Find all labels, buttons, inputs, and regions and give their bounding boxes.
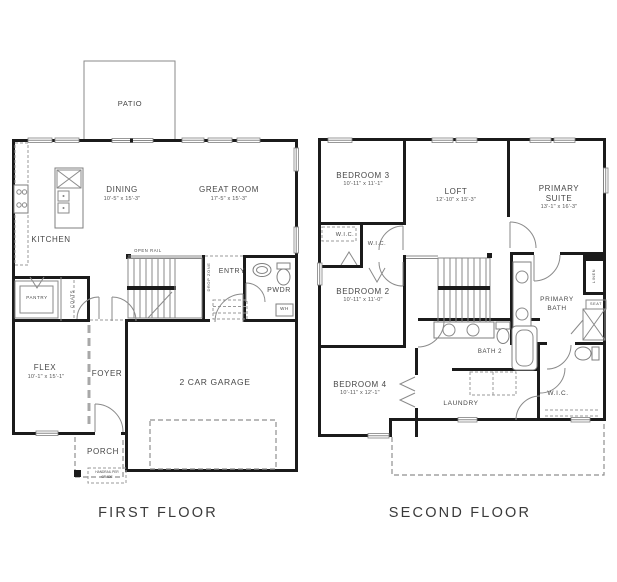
- toilet-room-door-arc: [547, 345, 571, 369]
- label-primary-suite-2: SUITE: [546, 195, 573, 203]
- bedroom4-door: [400, 393, 415, 407]
- patio-sliding-door: [112, 139, 153, 143]
- laundry-appliances: [470, 372, 516, 395]
- label-loft: LOFT: [445, 188, 468, 196]
- powder-room-fixtures: [253, 263, 290, 285]
- label-bedroom4: BEDROOM 4: [333, 381, 386, 389]
- double-vanity: [513, 262, 531, 328]
- label-pwdr: PWDR: [267, 287, 291, 294]
- label-great-room: GREAT ROOM: [199, 186, 259, 194]
- garage-door-outline: [150, 420, 276, 469]
- first-floor-title: FIRST FLOOR: [98, 505, 218, 521]
- label-linen: LINEN: [592, 269, 596, 283]
- label-handrail-note-2: GRADE: [101, 476, 112, 479]
- label-laundry: LAUNDRY: [443, 401, 478, 408]
- label-dining-dims: 10'-5" x 15'-3": [104, 197, 141, 203]
- linen-closet-wall: [583, 255, 606, 261]
- bedroom4-door: [400, 377, 415, 391]
- floor-plan-drawing: [0, 0, 617, 582]
- toilet-tank: [592, 347, 599, 360]
- front-door-arc: [95, 404, 123, 432]
- label-seat: SEAT: [590, 302, 602, 306]
- garage-entry-door-arc: [215, 294, 243, 322]
- label-primary-bath-1: PRIMARY: [540, 297, 574, 304]
- floor-plan-page: PATIO DINING 10'-5" x 15'-3" GREAT ROOM …: [0, 0, 617, 582]
- porch-outline: [74, 437, 126, 483]
- label-wic-primary: W.I.C.: [547, 391, 568, 398]
- label-kitchen: KITCHEN: [31, 236, 70, 244]
- first-floor-plan: [12, 61, 299, 483]
- label-wic-bedroom3-b: W.I.C.: [368, 242, 387, 248]
- toilet: [277, 269, 290, 285]
- label-wh: WH: [280, 307, 289, 312]
- label-garage: 2 CAR GARAGE: [180, 378, 251, 387]
- label-porch: PORCH: [87, 448, 119, 456]
- label-dining: DINING: [106, 186, 138, 194]
- label-bedroom4-dims: 10'-11" x 12'-1": [340, 391, 380, 397]
- label-coats: COATS: [71, 290, 76, 308]
- label-drop-zone: DROP ZONE: [207, 262, 211, 291]
- label-foyer: FOYER: [92, 370, 123, 378]
- footprint-dashed-outline: [392, 421, 604, 475]
- toilet: [497, 329, 509, 344]
- label-primary-suite-1: PRIMARY: [539, 185, 580, 193]
- label-entry: ENTRY: [219, 268, 246, 275]
- laundry-door-arc: [516, 396, 540, 420]
- label-great-room-dims: 17'-5" x 15'-3": [211, 197, 248, 203]
- label-flex-dims: 10'-1" x 15'-1": [28, 375, 65, 381]
- label-primary-bath-2: BATH: [547, 306, 566, 313]
- label-bath2: BATH 2: [478, 349, 502, 355]
- sink: [253, 264, 271, 277]
- second-floor-title: SECOND FLOOR: [389, 505, 531, 521]
- label-flex: FLEX: [34, 364, 56, 372]
- label-wic-bedroom3-a: W.I.C.: [336, 233, 355, 239]
- powder-door-arc: [246, 283, 265, 302]
- label-bedroom2: BEDROOM 2: [336, 288, 389, 296]
- label-pantry: PANTRY: [26, 296, 47, 301]
- shower: [571, 300, 606, 340]
- primary-bath-door-arc: [534, 255, 560, 281]
- primary-suite-door-arc: [510, 222, 536, 248]
- label-loft-dims: 12'-10" x 15'-3": [436, 198, 476, 204]
- label-patio: PATIO: [118, 100, 142, 108]
- kitchen-fixtures: [14, 143, 83, 265]
- toilet: [575, 347, 591, 360]
- first-floor-stairs: [127, 258, 202, 318]
- wic-door: [341, 252, 357, 265]
- toilet-tank: [496, 322, 510, 329]
- toilet-tank: [277, 263, 290, 269]
- label-bedroom2-dims: 10'-11" x 11'-0": [343, 298, 382, 304]
- bath2-fixtures: [434, 322, 537, 370]
- range-cooktop: [14, 185, 28, 213]
- label-primary-suite-dims: 13'-1" x 16'-3": [541, 205, 578, 211]
- label-bedroom3-dims: 10'-11" x 11'-1": [343, 182, 382, 188]
- kitchen-island: [55, 168, 83, 228]
- porch-post: [74, 470, 81, 477]
- label-bedroom3: BEDROOM 3: [336, 172, 389, 180]
- hall-door-arc: [112, 297, 136, 321]
- label-open-rail: OPEN RAIL: [134, 249, 162, 253]
- bedroom2-door-arc: [379, 262, 403, 286]
- first-floor-doors: [77, 283, 265, 432]
